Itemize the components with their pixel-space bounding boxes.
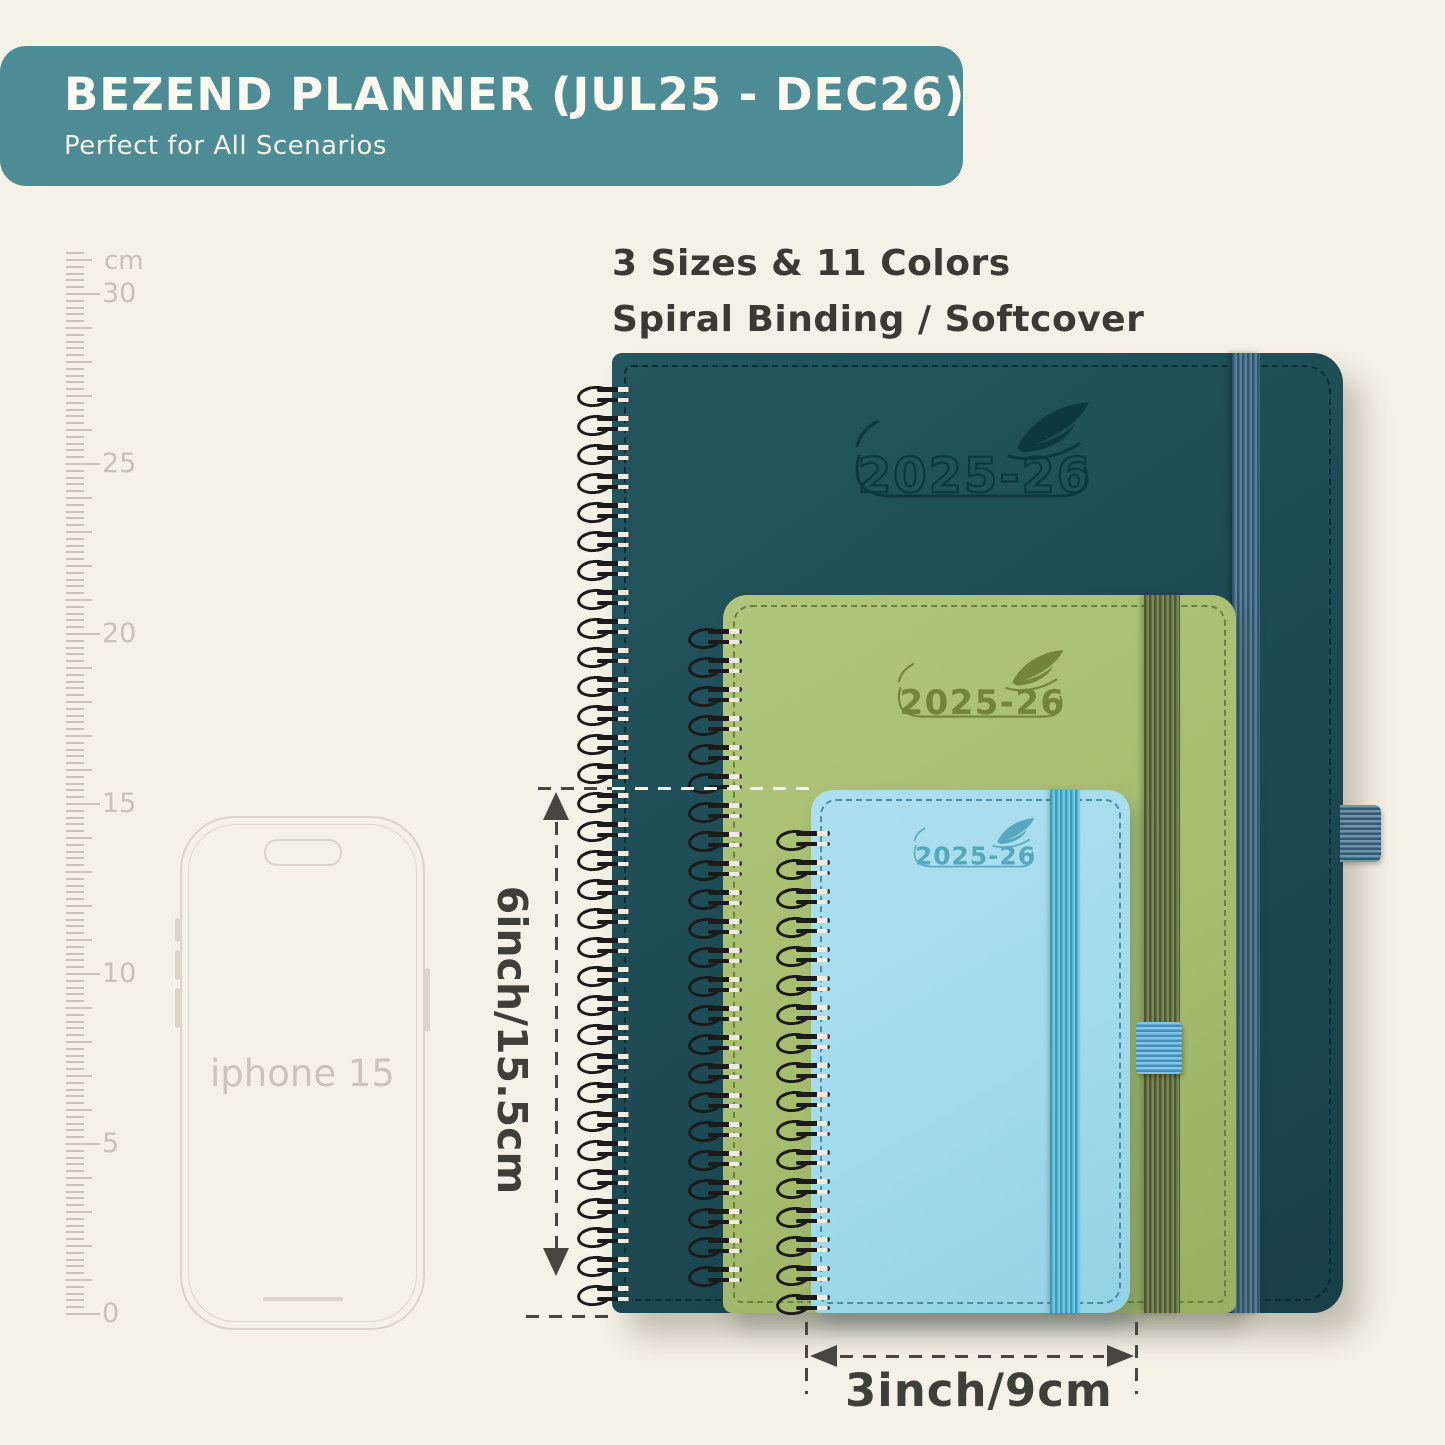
ruler-tick xyxy=(66,1259,84,1261)
spiral-coil xyxy=(776,1265,832,1283)
ruler-tick xyxy=(66,375,84,377)
ruler-tick xyxy=(66,1095,84,1097)
ruler-tick xyxy=(66,1252,84,1254)
planner-small-year: 2025-26 xyxy=(915,842,1036,871)
ruler-tick xyxy=(66,1150,84,1152)
ruler-tick xyxy=(66,803,100,805)
ruler-tick xyxy=(66,579,84,581)
spiral-coil xyxy=(776,1178,832,1196)
ruler-tick xyxy=(66,517,84,519)
ruler-tick xyxy=(66,1265,84,1267)
planner-large-year: 2025-26 xyxy=(858,448,1092,504)
spiral-coil xyxy=(688,918,744,936)
ruler-tick xyxy=(66,286,84,288)
ruler-tick xyxy=(66,551,84,553)
spiral-coil xyxy=(688,1063,744,1081)
ruler-tick xyxy=(66,327,92,329)
ruler-tick xyxy=(66,674,84,676)
ruler-tick xyxy=(66,538,84,540)
spiral-coil xyxy=(776,917,832,935)
width-dim-line xyxy=(840,1355,1104,1358)
ruler-tick xyxy=(66,300,84,302)
spiral-coil xyxy=(577,531,633,549)
ruler-tick xyxy=(66,279,84,281)
spiral-coil xyxy=(577,1256,633,1274)
ruler-tick xyxy=(66,817,84,819)
ruler-tick xyxy=(66,313,84,315)
spiral-coil xyxy=(577,444,633,462)
ruler-tick xyxy=(66,687,84,689)
spiral-coil xyxy=(776,1120,832,1138)
iphone-outline: iphone 15 xyxy=(180,816,425,1330)
ruler-tick xyxy=(66,1082,84,1084)
ruler-tick xyxy=(66,545,84,547)
ruler-tick xyxy=(66,273,84,275)
planner-small-elastic-band xyxy=(1050,790,1080,1313)
ruler-tick xyxy=(66,347,84,349)
ruler-tick xyxy=(66,1238,84,1240)
ruler-tick xyxy=(66,1055,84,1057)
ruler-tick xyxy=(66,966,84,968)
ruler-tick xyxy=(66,1136,84,1138)
product-image: BEZEND PLANNER (JUL25 - DEC26) Perfect f… xyxy=(0,0,1445,1445)
ruler-tick xyxy=(66,415,84,417)
ruler-tick xyxy=(66,1034,84,1036)
spiral-coil xyxy=(577,908,633,926)
ruler-tick xyxy=(66,341,84,343)
spiral-coil xyxy=(577,879,633,897)
ruler-tick-label: 15 xyxy=(102,788,182,819)
spiral-coil xyxy=(776,888,832,906)
ruler-tick xyxy=(66,789,84,791)
mute-switch xyxy=(175,918,180,942)
spiral-coil xyxy=(577,850,633,868)
ruler-tick xyxy=(66,1306,84,1308)
ruler-unit-label: cm xyxy=(104,246,144,276)
spiral-coil xyxy=(577,1024,633,1042)
ruler-tick xyxy=(66,742,84,744)
ruler-tick xyxy=(66,837,92,839)
spiral-coil xyxy=(577,995,633,1013)
spiral-coil xyxy=(577,1198,633,1216)
spiral-coil xyxy=(776,1004,832,1022)
ruler-tick xyxy=(66,1170,84,1172)
width-dimension-label: 3inch/9cm xyxy=(845,1364,1105,1417)
spiral-coil xyxy=(688,947,744,965)
width-ref-line-left xyxy=(805,1322,808,1394)
ruler-tick xyxy=(66,640,84,642)
ruler-tick xyxy=(66,1197,84,1199)
ruler-tick xyxy=(66,762,84,764)
spiral-coil xyxy=(776,1236,832,1254)
spiral-coil xyxy=(688,657,744,675)
ruler-tick xyxy=(66,592,84,594)
intro-line-binding: Spiral Binding / Softcover xyxy=(612,292,1144,348)
ruler-tick xyxy=(66,708,84,710)
ruler-tick xyxy=(66,252,84,254)
ruler-tick xyxy=(66,395,92,397)
ruler-tick xyxy=(66,919,84,921)
spiral-coil xyxy=(577,1169,633,1187)
spiral-coil xyxy=(688,1208,744,1226)
ruler-tick xyxy=(66,681,84,683)
planner-large-logo: 2025-26 xyxy=(845,402,1105,522)
ruler-tick xyxy=(66,891,84,893)
ruler-tick xyxy=(66,912,84,914)
dynamic-island xyxy=(264,839,342,866)
spiral-coil xyxy=(577,676,633,694)
ruler-tick xyxy=(66,409,84,411)
ruler-tick xyxy=(66,932,84,934)
spiral-coil xyxy=(776,830,832,848)
spiral-coil xyxy=(577,821,633,839)
ruler-tick xyxy=(66,606,84,608)
spiral-coil xyxy=(776,859,832,877)
ruler-tick xyxy=(66,490,84,492)
height-ref-line-bottom xyxy=(526,1315,612,1318)
ruler-tick xyxy=(66,1027,84,1029)
ruler-tick xyxy=(66,660,84,662)
ruler-tick xyxy=(66,1279,92,1281)
ruler-tick-label: 5 xyxy=(102,1128,182,1159)
ruler-tick xyxy=(66,497,92,499)
ruler-tick xyxy=(66,429,92,431)
ruler-tick xyxy=(66,1143,100,1145)
height-arrow-down xyxy=(543,1248,569,1276)
ruler-tick xyxy=(66,1211,92,1213)
ruler-tick xyxy=(66,599,92,601)
planner-medium-elastic-band xyxy=(1144,595,1180,1313)
spiral-coil xyxy=(688,1150,744,1168)
volume-up-button xyxy=(175,950,180,980)
ruler-tick xyxy=(66,565,92,567)
ruler-tick xyxy=(66,477,84,479)
ruler-tick xyxy=(66,939,92,941)
spiral-coil xyxy=(688,1121,744,1139)
ruler-tick xyxy=(66,1007,92,1009)
ruler-tick-label: 0 xyxy=(102,1298,182,1329)
ruler-tick xyxy=(66,905,92,907)
spiral-coil xyxy=(776,1207,832,1225)
height-ref-line-top xyxy=(612,787,812,790)
ruler-tick xyxy=(66,925,84,927)
ruler-tick xyxy=(66,885,84,887)
ruler-tick xyxy=(66,1089,84,1091)
ruler-tick-label: 10 xyxy=(102,958,182,989)
ruler-tick xyxy=(66,381,84,383)
ruler-tick xyxy=(66,320,84,322)
ruler-tick xyxy=(66,667,92,669)
spiral-coil xyxy=(577,1140,633,1158)
spiral-coil xyxy=(776,1294,832,1312)
planner-medium-year: 2025-26 xyxy=(900,683,1066,723)
ruler-tick-label: 30 xyxy=(102,278,182,309)
spiral-coil xyxy=(776,1033,832,1051)
ruler-tick xyxy=(66,470,84,472)
ruler-tick xyxy=(66,436,84,438)
ruler-tick xyxy=(66,769,92,771)
spiral-coil xyxy=(688,1005,744,1023)
spiral-coil xyxy=(577,966,633,984)
ruler-tick xyxy=(66,1075,92,1077)
spiral-coil xyxy=(776,975,832,993)
ruler-tick xyxy=(66,898,84,900)
ruler-tick xyxy=(66,1068,84,1070)
planner-small-logo: 2025-26 xyxy=(908,818,1043,880)
spiral-coil xyxy=(577,734,633,752)
spiral-coil xyxy=(776,1149,832,1167)
ruler-tick xyxy=(66,1204,84,1206)
ruler-tick xyxy=(66,796,84,798)
ruler-tick xyxy=(66,647,84,649)
ruler-tick xyxy=(66,973,100,975)
spiral-coil xyxy=(688,1266,744,1284)
ruler-tick xyxy=(66,585,84,587)
ruler-tick xyxy=(66,402,84,404)
spiral-coil xyxy=(577,618,633,636)
ruler-tick xyxy=(66,1191,84,1193)
spiral-coil xyxy=(577,1053,633,1071)
height-dim-line xyxy=(555,822,558,1248)
spiral-coil xyxy=(577,1111,633,1129)
spiral-coil xyxy=(688,744,744,762)
iphone-label: iphone 15 xyxy=(182,1052,423,1095)
height-dimension-label: 6inch/15.5cm xyxy=(488,886,536,1194)
ruler-tick xyxy=(66,1123,84,1125)
ruler-tick xyxy=(66,524,84,526)
speaker-slot xyxy=(263,1297,343,1301)
ruler-tick xyxy=(66,959,84,961)
page-subtitle: Perfect for All Scenarios xyxy=(64,131,963,161)
ruler-tick xyxy=(66,1061,84,1063)
intro-text: 3 Sizes & 11 Colors Spiral Binding / Sof… xyxy=(612,236,1144,348)
ruler-tick xyxy=(66,558,84,560)
ruler-tick xyxy=(66,1014,84,1016)
width-ref-line-right xyxy=(1135,1322,1138,1394)
spiral-coil xyxy=(688,860,744,878)
ruler-tick xyxy=(66,572,84,574)
ruler-tick xyxy=(66,504,84,506)
ruler-tick xyxy=(66,449,84,451)
ruler-tick xyxy=(66,851,84,853)
ruler-tick xyxy=(66,735,92,737)
ruler-tick xyxy=(66,694,84,696)
ruler-tick xyxy=(66,653,84,655)
ruler-tick xyxy=(66,1177,92,1179)
spiral-coil xyxy=(688,686,744,704)
spiral-coil xyxy=(577,560,633,578)
ruler-tick xyxy=(66,388,84,390)
ruler-tick xyxy=(66,1218,84,1220)
ruler-tick xyxy=(66,361,92,363)
header-banner: BEZEND PLANNER (JUL25 - DEC26) Perfect f… xyxy=(0,46,963,186)
spiral-coil xyxy=(688,889,744,907)
ruler-tick xyxy=(66,1231,84,1233)
ruler-tick xyxy=(66,293,100,295)
ruler-tick xyxy=(66,307,84,309)
ruler-tick xyxy=(66,613,84,615)
spiral-coil xyxy=(577,386,633,404)
ruler-tick xyxy=(66,1000,84,1002)
planner-medium-logo: 2025-26 xyxy=(890,650,1075,735)
ruler-tick xyxy=(66,463,100,465)
spiral-coil xyxy=(688,1237,744,1255)
ruler-tick xyxy=(66,1245,92,1247)
planner-large-elastic-band xyxy=(1232,353,1260,1313)
spiral-coil xyxy=(776,1062,832,1080)
ruler-tick xyxy=(66,1157,84,1159)
spiral-coil xyxy=(688,1092,744,1110)
ruler-tick xyxy=(66,633,100,635)
spiral-coil xyxy=(577,792,633,810)
width-arrow-left xyxy=(810,1345,837,1367)
spiral-coil xyxy=(688,628,744,646)
ruler-tick xyxy=(66,259,92,261)
spiral-coil xyxy=(776,1091,832,1109)
spiral-coil xyxy=(577,502,633,520)
ruler-tick xyxy=(66,980,84,982)
ruler-tick xyxy=(66,864,84,866)
ruler-tick xyxy=(66,443,84,445)
ruler-tick xyxy=(66,878,84,880)
spiral-coil xyxy=(577,473,633,491)
ruler-tick xyxy=(66,1116,84,1118)
ruler-tick xyxy=(66,334,84,336)
spiral-coil xyxy=(688,802,744,820)
spiral-coil xyxy=(577,1227,633,1245)
power-button xyxy=(425,968,430,1032)
ruler-tick-label: 20 xyxy=(102,618,182,649)
spiral-coil xyxy=(577,705,633,723)
ruler-tick xyxy=(66,1184,84,1186)
ruler-tick xyxy=(66,1163,84,1165)
spiral-coil xyxy=(688,976,744,994)
spiral-coil xyxy=(688,1034,744,1052)
spiral-coil xyxy=(577,589,633,607)
height-ref-line-dark xyxy=(538,787,612,790)
ruler-tick xyxy=(66,483,84,485)
ruler-tick xyxy=(66,701,92,703)
ruler-tick xyxy=(66,721,84,723)
ruler-tick xyxy=(66,1286,84,1288)
ruler-tick xyxy=(66,1293,84,1295)
ruler-tick xyxy=(66,728,84,730)
page-title: BEZEND PLANNER (JUL25 - DEC26) xyxy=(64,68,963,121)
planner-large-pen-loop xyxy=(1340,805,1381,862)
spiral-coil xyxy=(577,1082,633,1100)
spiral-coil xyxy=(776,946,832,964)
spiral-coil xyxy=(577,1285,633,1303)
ruler-tick xyxy=(66,953,84,955)
spiral-coil xyxy=(577,763,633,781)
spiral-coil xyxy=(688,831,744,849)
ruler-tick xyxy=(66,715,84,717)
ruler-tick xyxy=(66,1048,84,1050)
spiral-coil xyxy=(688,715,744,733)
ruler-tick xyxy=(66,830,84,832)
ruler-tick xyxy=(66,1041,92,1043)
ruler-tick xyxy=(66,810,84,812)
ruler-tick-label: 25 xyxy=(102,448,182,479)
ruler-tick xyxy=(66,1299,84,1301)
ruler-tick xyxy=(66,1109,92,1111)
ruler-tick xyxy=(66,1129,84,1131)
ruler-tick xyxy=(66,619,84,621)
ruler-tick xyxy=(66,857,84,859)
ruler-tick xyxy=(66,993,84,995)
ruler-tick xyxy=(66,511,84,513)
ruler-tick xyxy=(66,871,92,873)
spiral-coil xyxy=(688,1179,744,1197)
ruler-tick xyxy=(66,776,84,778)
spiral-coil xyxy=(577,647,633,665)
ruler-tick xyxy=(66,783,84,785)
spiral-coil xyxy=(577,937,633,955)
height-arrow-up xyxy=(543,792,569,820)
ruler-tick xyxy=(66,749,84,751)
ruler-tick xyxy=(66,354,84,356)
ruler-tick xyxy=(66,456,84,458)
ruler-tick xyxy=(66,368,84,370)
ruler-tick xyxy=(66,626,84,628)
ruler-tick xyxy=(66,1313,100,1315)
ruler-tick xyxy=(66,755,84,757)
ruler-tick xyxy=(66,987,84,989)
ruler-tick xyxy=(66,844,84,846)
volume-down-button xyxy=(175,988,180,1028)
ruler-tick xyxy=(66,1021,84,1023)
ruler-tick xyxy=(66,1102,84,1104)
ruler-tick xyxy=(66,1272,84,1274)
ruler-tick xyxy=(66,422,84,424)
ruler-tick xyxy=(66,946,84,948)
spiral-coil xyxy=(577,415,633,433)
ruler-tick xyxy=(66,531,92,533)
ruler-tick xyxy=(66,823,84,825)
ruler-tick xyxy=(66,266,84,268)
ruler-tick xyxy=(66,1225,84,1227)
intro-line-sizes: 3 Sizes & 11 Colors xyxy=(612,236,1144,292)
planner-small-pen-loop xyxy=(1136,1022,1182,1074)
